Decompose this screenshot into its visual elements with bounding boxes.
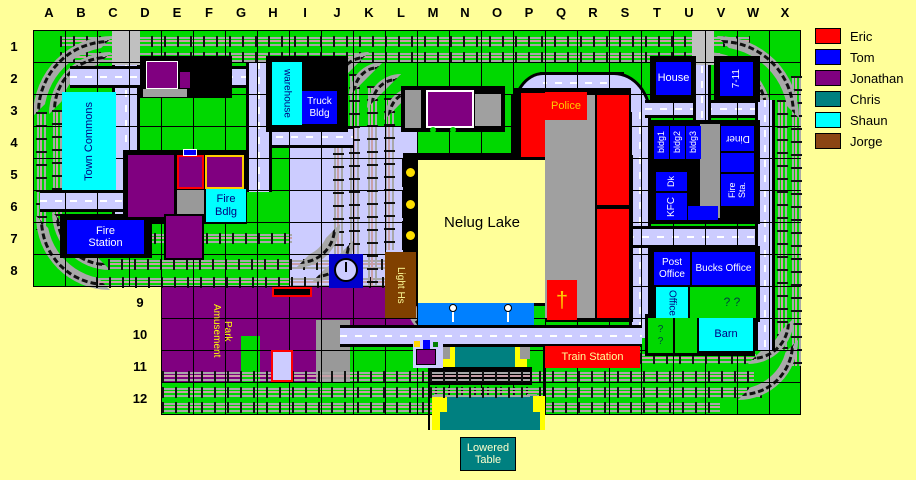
col-label-R: R	[577, 2, 609, 22]
legend-name: Jorge	[850, 134, 883, 149]
legend-swatch-eric	[815, 28, 841, 44]
col-label-C: C	[97, 2, 129, 22]
legend-item-jonathan: Jonathan	[815, 70, 904, 86]
track-top-outer	[60, 36, 750, 47]
track-east-inner	[777, 100, 788, 350]
church: †	[547, 280, 577, 320]
signal-3	[402, 221, 418, 250]
track-row8-a	[108, 259, 408, 270]
col-label-K: K	[353, 2, 385, 22]
row-label-7: 7	[0, 222, 28, 254]
col-label-T: T	[641, 2, 673, 22]
bldg2: bldg2	[670, 126, 685, 159]
legend-item-jorge: Jorge	[815, 133, 904, 149]
n3-building	[426, 90, 474, 128]
col-label-P: P	[513, 2, 545, 22]
bucks-office: Bucks Office	[692, 252, 755, 285]
warehouse: warehouse	[272, 62, 302, 125]
row-label-10: 10	[126, 318, 154, 350]
legend-item-shaun: Shaun	[815, 112, 904, 128]
engine	[146, 61, 178, 89]
col-label-X: X	[769, 2, 801, 22]
yard-track-4	[384, 98, 395, 250]
bldg1: bldg1	[654, 126, 669, 159]
col-label-O: O	[481, 2, 513, 22]
col-label-E: E	[161, 2, 193, 22]
col-label-B: B	[65, 2, 97, 22]
fire-bdlg: Fire Bdlg	[206, 189, 246, 222]
town-commons: Town Commons	[62, 92, 116, 190]
coaster-red	[177, 155, 204, 189]
dock-crate-yellow	[414, 341, 420, 347]
yard-track-3	[367, 86, 378, 287]
engine-cab	[180, 72, 190, 88]
police-wing-west	[521, 93, 545, 157]
row-label-6: 6	[0, 190, 28, 222]
col-label-Q: Q	[545, 2, 577, 22]
col-label-A: A	[33, 2, 65, 22]
light-hs: Light Hs	[385, 252, 416, 318]
d5-building-1	[128, 155, 174, 217]
legend-name: Eric	[850, 29, 872, 44]
col-label-L: L	[385, 2, 417, 22]
rock-ne	[520, 347, 530, 359]
col-label-W: W	[737, 2, 769, 22]
train-station: Train Station	[545, 346, 640, 368]
d5-markers	[183, 149, 197, 156]
road-row10	[340, 325, 642, 347]
legend-name: Shaun	[850, 113, 888, 128]
legend-item-eric: Eric	[815, 28, 904, 44]
n3-annex	[475, 94, 501, 126]
bridge-track-2	[430, 387, 530, 398]
office: Office	[656, 287, 688, 318]
police-wing-east-2	[597, 209, 629, 318]
lowered-table-label: Lowered Table	[460, 437, 516, 471]
col-label-S: S	[609, 2, 641, 22]
road-row7-east	[612, 226, 757, 248]
fire-sta: Fire Sta.	[721, 174, 754, 206]
legend-swatch-jorge	[815, 133, 841, 149]
signal-1-light	[406, 168, 415, 177]
row-label-1: 1	[0, 30, 28, 62]
dk: Dk	[656, 172, 687, 191]
row-label-8: 8	[0, 254, 28, 286]
ride-platform	[272, 287, 312, 297]
col-label-D: D	[129, 2, 161, 22]
post-office: Post Office	[654, 252, 690, 285]
house: House	[656, 62, 691, 95]
dock-crate-blue	[423, 340, 430, 349]
lamp-pole-2	[507, 312, 509, 322]
row-label-11: 11	[126, 350, 154, 382]
engine-platform	[143, 89, 187, 97]
tree-1	[430, 127, 436, 133]
col-label-N: N	[449, 2, 481, 22]
row-label-4: 4	[0, 126, 28, 158]
signal-2	[402, 191, 418, 218]
col-label-F: F	[193, 2, 225, 22]
river-south-wide	[440, 412, 540, 430]
amusement-park-label: Amusement Park	[200, 292, 244, 370]
lake-label: Nelug Lake	[420, 212, 544, 234]
police-wing-east-1	[597, 95, 629, 205]
row-label-2: 2	[0, 62, 28, 94]
diner: Diner	[721, 126, 754, 151]
kfc: KFC	[656, 193, 687, 220]
track-west-outer	[36, 112, 47, 230]
col-label-I: I	[289, 2, 321, 22]
coaster-lattice	[205, 155, 244, 189]
green-cell-1	[690, 287, 708, 318]
police-hq: Police	[545, 92, 587, 120]
row-label-12: 12	[126, 382, 154, 414]
legend-item-tom: Tom	[815, 49, 904, 65]
bldg3: bldg3	[686, 126, 701, 159]
lighthouse-beacon	[345, 262, 347, 272]
kfc-annex	[688, 206, 718, 220]
unknown-cell-1: ? ?	[708, 287, 756, 318]
legend-item-chris: Chris	[815, 91, 904, 107]
fire-station: Fire Station	[67, 220, 144, 254]
seven-eleven: 7-11	[720, 62, 753, 96]
lamp-post-2	[504, 304, 512, 312]
legend-swatch-jonathan	[815, 70, 841, 86]
bridge-track-1	[430, 371, 530, 382]
signal-3-light	[406, 231, 415, 240]
signal-1	[402, 158, 418, 187]
n3-parking	[405, 90, 421, 128]
row-label-5: 5	[0, 158, 28, 190]
legend: EricTomJonathanChrisShaunJorge	[815, 28, 904, 154]
d5-building-2	[164, 214, 204, 260]
lamp-pole-1	[452, 312, 454, 322]
col-label-M: M	[417, 2, 449, 22]
diner-annex	[721, 153, 754, 172]
signal-2-light	[406, 200, 415, 209]
legend-name: Jonathan	[850, 71, 904, 86]
truck-bldg: Truck Bldg	[302, 91, 337, 124]
kfc-parking	[700, 124, 720, 218]
legend-name: Chris	[850, 92, 880, 107]
col-label-V: V	[705, 2, 737, 22]
legend-swatch-chris	[815, 91, 841, 107]
col-label-U: U	[673, 2, 705, 22]
row-label-9: 9	[126, 286, 154, 318]
legend-swatch-tom	[815, 49, 841, 65]
col-label-G: G	[225, 2, 257, 22]
green-cell-2	[675, 318, 697, 353]
park-entrance	[271, 350, 293, 382]
row-label-3: 3	[0, 94, 28, 126]
train-layout-map: †PoliceTown CommonsFire StationFire Bdlg…	[0, 0, 916, 480]
road-row2-west	[70, 66, 148, 88]
dock-shed	[416, 349, 436, 365]
col-label-J: J	[321, 2, 353, 22]
unknown-cell-2: ? ?	[648, 318, 673, 353]
lamp-post-1	[449, 304, 457, 312]
col-label-H: H	[257, 2, 289, 22]
dock-crate-green	[433, 342, 438, 347]
legend-swatch-shaun	[815, 112, 841, 128]
legend-name: Tom	[850, 50, 875, 65]
rail-crossing-d	[112, 31, 140, 65]
tree-2	[450, 127, 456, 133]
barn: Barn	[699, 318, 753, 351]
